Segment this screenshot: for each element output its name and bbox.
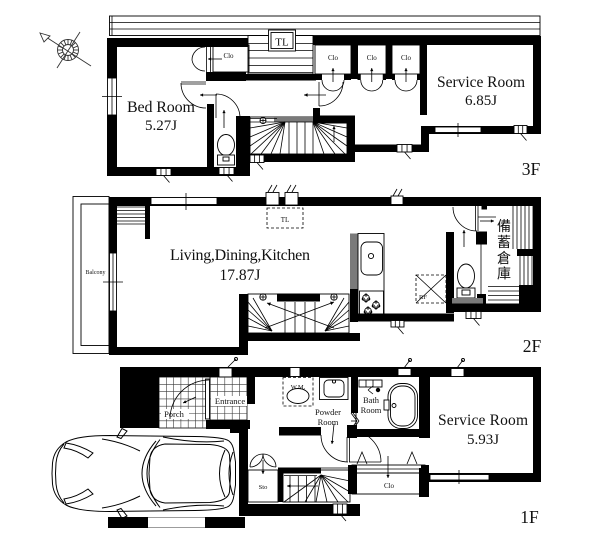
- svg-text:Clo: Clo: [384, 482, 395, 490]
- svg-text:Entrance: Entrance: [215, 396, 245, 406]
- svg-text:Balcony: Balcony: [86, 270, 106, 276]
- svg-text:W.M.: W.M.: [291, 384, 306, 391]
- svg-text:3F: 3F: [522, 159, 541, 179]
- svg-text:Living,Dining,Kitchen: Living,Dining,Kitchen: [170, 247, 310, 264]
- svg-text:倉: 倉: [497, 251, 511, 267]
- svg-text:Bed Room: Bed Room: [127, 99, 196, 116]
- svg-text:1F: 1F: [520, 507, 539, 527]
- svg-text:備: 備: [497, 219, 511, 235]
- svg-text:2F: 2F: [523, 336, 542, 356]
- svg-text:Bath: Bath: [363, 395, 380, 405]
- svg-text:Room: Room: [361, 405, 382, 415]
- svg-text:Clo: Clo: [367, 54, 378, 62]
- svg-text:5.27J: 5.27J: [145, 118, 177, 134]
- svg-text:Service Room: Service Room: [437, 74, 525, 91]
- svg-text:Powder: Powder: [315, 407, 341, 417]
- svg-text:Porch: Porch: [164, 409, 185, 419]
- svg-text:6.85J: 6.85J: [465, 93, 497, 109]
- svg-text:5.93J: 5.93J: [467, 432, 499, 448]
- svg-text:Sto: Sto: [259, 484, 268, 491]
- svg-text:蓄: 蓄: [497, 235, 511, 251]
- svg-text:Clo: Clo: [401, 54, 412, 62]
- svg-text:TL: TL: [275, 37, 289, 49]
- svg-text:庫: 庫: [497, 266, 511, 283]
- svg-text:RF: RF: [419, 294, 427, 301]
- svg-text:Clo: Clo: [223, 52, 234, 60]
- svg-text:Clo: Clo: [328, 54, 339, 62]
- svg-text:TL: TL: [281, 216, 290, 224]
- svg-text:Room: Room: [318, 417, 339, 427]
- svg-text:Service Room: Service Room: [438, 412, 528, 429]
- svg-text:17.87J: 17.87J: [220, 267, 261, 284]
